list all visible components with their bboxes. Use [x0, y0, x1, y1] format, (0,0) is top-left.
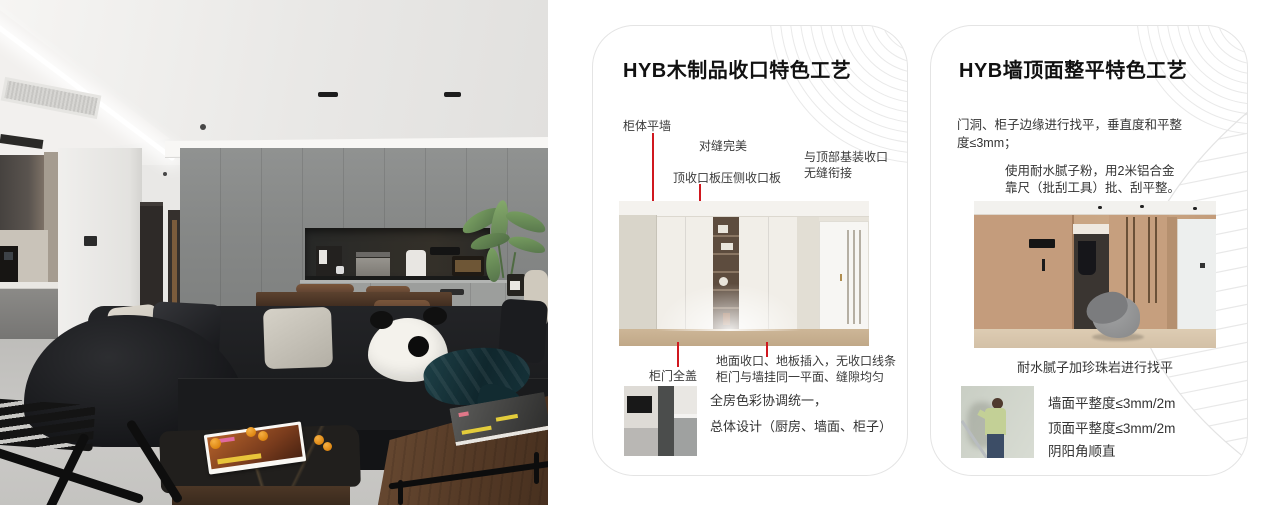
plant-pot [507, 274, 525, 296]
summary-line2: 总体设计（厨房、墙面、柜子） [710, 414, 892, 439]
para2-line2: 靠尺（批刮工具）批、刮平整。 [1005, 179, 1180, 197]
callout-cabinet-wall: 柜体平墙 [623, 117, 671, 134]
built-in-coffee-machine [0, 246, 18, 282]
orange-fruit [323, 442, 332, 451]
callout-seam-perfect: 对缝完美 [699, 137, 747, 154]
ceiling-light [444, 92, 461, 97]
orange-fruit [258, 431, 268, 441]
orange-fruit [210, 438, 221, 449]
kitchen-base-cabinets [0, 289, 60, 339]
ceiling-light [318, 92, 338, 97]
leader-line [677, 342, 679, 367]
tv [627, 396, 652, 413]
kitchen-counter [0, 282, 60, 289]
orange-fruit [246, 427, 256, 437]
card2-title: HYB墙顶面整平特色工艺 [959, 54, 1187, 83]
wardrobe-render-image [619, 201, 869, 346]
worker-thumb-image [961, 386, 1034, 458]
control-panel [1029, 239, 1055, 248]
card-wall-leveling: HYB墙顶面整平特色工艺 门洞、柜子边缘进行找平，垂直度和平整 度≤3mm； 使… [930, 25, 1248, 476]
wood-door [974, 215, 1074, 329]
callout-floor-line1: 地面收口、地板插入，无收口线条 [716, 353, 896, 369]
white-coffee-maker [406, 250, 426, 276]
para1-line1: 门洞、柜子边缘进行找平，垂直度和平整 [957, 116, 1182, 134]
spec-wall: 墙面平整度≤3mm/2m [1048, 392, 1175, 416]
interior-door [819, 221, 869, 331]
card-wood-finish: HYB木制品收口特色工艺 柜体平墙 对缝完美 顶收口板压侧收口板 与顶部基装收口… [592, 25, 908, 476]
callout-top-panel: 顶收口板压侧收口板 [673, 169, 781, 186]
callout-door-cover: 柜门全盖 [649, 367, 697, 384]
summary-line1: 全房色彩协调统一， [710, 388, 827, 413]
kitchen-thumb-image [624, 386, 697, 456]
callout-floor-line2: 柜门与墙挂同一平面、缝隙均匀 [716, 369, 884, 385]
wood-room-image [974, 201, 1216, 348]
para2-line1: 使用耐水腻子粉，用2米铝合金 [1005, 162, 1174, 180]
espresso-machine [356, 258, 390, 276]
light-switch [84, 236, 97, 246]
spec-ceiling: 顶面平整度≤3mm/2m [1048, 417, 1175, 441]
cream-pillow [263, 307, 333, 369]
living-room-photo [0, 0, 548, 505]
callout-top-joint: 与顶部基装收口 无缝衔接 [804, 149, 904, 181]
spec-corner: 阴阳角顺直 [1048, 440, 1116, 464]
card1-title: HYB木制品收口特色工艺 [623, 54, 851, 83]
page: HYB木制品收口特色工艺 柜体平墙 对缝完美 顶收口板压侧收口板 与顶部基装收口… [0, 0, 1280, 505]
kitchen-upper-cabinets [0, 155, 48, 230]
white-door [1177, 219, 1216, 329]
image-caption: 耐水腻子加珍珠岩进行找平 [974, 357, 1216, 376]
para1-line2: 度≤3mm； [957, 134, 1017, 152]
